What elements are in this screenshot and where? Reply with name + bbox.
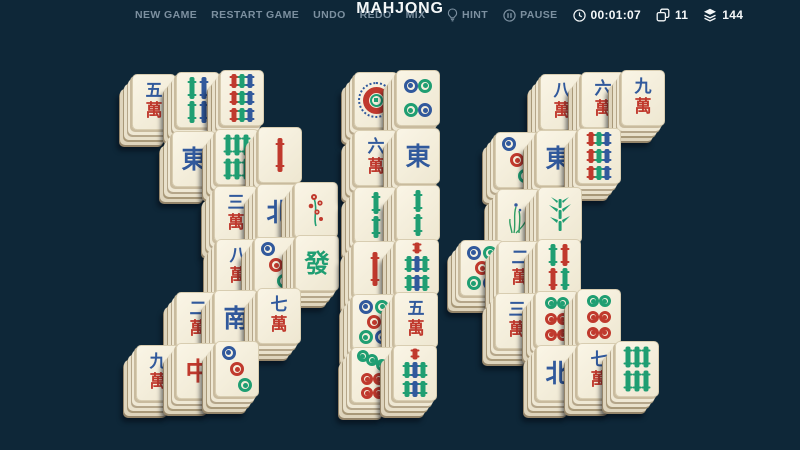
board: 五萬東三萬北八萬發二萬南七萬九萬中六萬東五萬八萬六萬九萬東二萬三萬北七萬 [0,0,800,450]
tile-3-dots[interactable] [495,132,539,188]
tile-6-bamboo[interactable] [215,129,259,185]
cards-icon [656,8,670,22]
tile-orchid-flower[interactable] [497,189,541,245]
tile-5-wan[interactable]: 五萬 [394,292,438,348]
tile-east-wind[interactable]: 東 [396,128,440,184]
topbar: NEW GAME RESTART GAME UNDO REDO MIX MAHJ… [0,0,800,30]
tile-red-dragon[interactable]: 中 [176,343,220,399]
tile-6-wan[interactable]: 六萬 [354,130,398,186]
tile-3-dots[interactable] [254,237,298,293]
tile-7-bamboo[interactable] [393,345,437,401]
tile-3-wan[interactable]: 三萬 [495,293,539,349]
tile-plum-flower[interactable] [294,182,338,238]
tile-4-bamboo[interactable] [537,239,581,295]
tile-1-dot[interactable] [354,72,398,128]
tile-green-dragon[interactable]: 發 [295,235,339,291]
app-title: MAHJONG [356,0,443,18]
tile-2-bamboo[interactable] [396,185,440,241]
tile-7-wan[interactable]: 七萬 [257,288,301,344]
tile-7-dots[interactable] [351,347,395,403]
hint-button[interactable]: HINT [447,8,488,22]
tile-2-wan[interactable]: 二萬 [498,241,542,297]
pairs-counter: 11 [656,8,688,22]
tile-east-wind[interactable]: 東 [172,131,216,187]
tile-2-bamboo[interactable] [354,187,398,243]
tile-1-bamboo[interactable] [258,127,302,183]
tile-bamboo-flower[interactable] [538,187,582,243]
tile-9-wan[interactable]: 九萬 [621,70,665,126]
hint-label: HINT [462,9,488,21]
tile-5-dots[interactable] [352,294,396,350]
pairs-count-value: 11 [675,8,688,22]
tile-6-dots[interactable] [577,289,621,345]
tile-9-bamboo[interactable] [577,128,621,184]
status-bar: HINT PAUSE 00:01:07 11 144 [447,0,743,30]
lightbulb-icon [447,8,458,22]
tile-6-bamboo[interactable] [615,341,659,397]
tile-south-wind[interactable]: 南 [214,290,258,346]
tile-9-wan[interactable]: 九萬 [136,345,180,401]
tiles-count-value: 144 [722,8,743,22]
tile-1-bamboo[interactable] [353,241,397,297]
pause-button[interactable]: PAUSE [503,9,557,22]
tile-3-dots[interactable] [215,341,259,397]
new-game-button[interactable]: NEW GAME [135,9,197,21]
tile-6-wan[interactable]: 六萬 [581,72,625,128]
pause-label: PAUSE [520,9,557,21]
tile-4-dots[interactable] [396,70,440,126]
undo-button[interactable]: UNDO [313,9,346,21]
tile-6-dots[interactable] [535,291,579,347]
tile-3-wan[interactable]: 三萬 [214,186,258,242]
clock-icon [573,9,586,22]
pause-icon [503,9,516,22]
tile-9-bamboo[interactable] [220,70,264,126]
tiles-counter: 144 [703,8,743,22]
timer: 00:01:07 [573,8,641,22]
tile-4-bamboo[interactable] [176,72,220,128]
tile-east-wind[interactable]: 東 [536,130,580,186]
restart-game-button[interactable]: RESTART GAME [211,9,299,21]
tile-8-wan[interactable]: 八萬 [540,74,584,130]
timer-value: 00:01:07 [591,8,641,22]
tile-north-wind[interactable]: 北 [536,345,580,401]
tile-7-bamboo[interactable] [395,239,439,295]
tile-5-wan[interactable]: 五萬 [132,74,176,130]
layers-icon [703,8,717,22]
